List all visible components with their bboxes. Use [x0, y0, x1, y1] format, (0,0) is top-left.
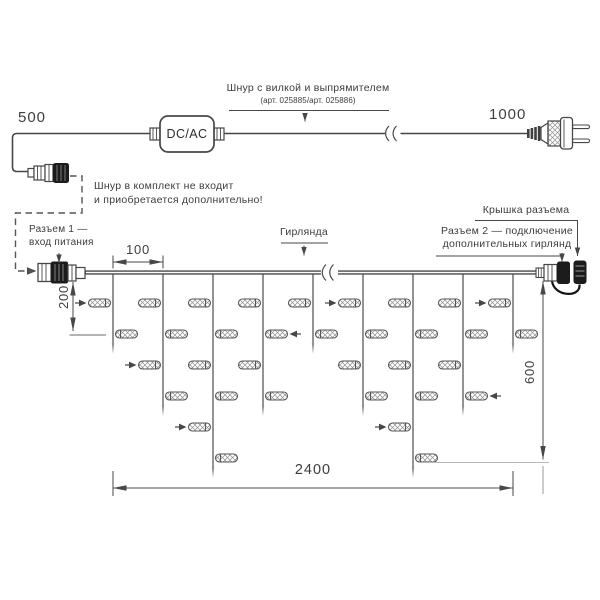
bulb	[116, 330, 138, 338]
cap-label: Крышка разъема	[474, 204, 578, 216]
cable-length-500: 500	[18, 109, 46, 126]
bulb	[189, 423, 211, 431]
connector1-label-line1: Разъем 1 —	[29, 224, 87, 236]
plug-prong	[573, 125, 590, 129]
drop-tip	[162, 405, 164, 416]
flash-marker-icon	[329, 300, 337, 307]
drop-tip	[112, 343, 114, 354]
flash-marker-icon	[379, 424, 387, 431]
connector-cap	[574, 261, 587, 285]
plug-prong	[573, 139, 590, 143]
power-plug	[527, 118, 590, 150]
cable-break-icon	[386, 126, 389, 141]
bulb	[289, 299, 311, 307]
bulb	[389, 299, 411, 307]
cable-length-1000: 1000	[489, 106, 526, 123]
diagram-page: 500 Шнур с вилкой и выпрямителем (арт. 0…	[0, 0, 600, 600]
bulb	[389, 361, 411, 369]
drop-tip	[462, 405, 464, 416]
dimension-lines	[70, 256, 550, 497]
bulb	[166, 330, 188, 338]
bulb	[416, 392, 438, 400]
dim-100-label: 100	[113, 243, 163, 258]
connector2-label-line1: Разъем 2 — подключение	[440, 225, 574, 237]
flash-marker-icon	[490, 393, 498, 400]
bulb	[516, 330, 538, 338]
bulb	[339, 299, 361, 307]
dim-2400-label: 2400	[283, 462, 343, 479]
bulb	[139, 299, 161, 307]
drop-tip	[212, 467, 214, 478]
bulb	[166, 392, 188, 400]
cord-connector	[28, 163, 69, 183]
cord-subtitle: (арт. 025885/арт. 025886)	[224, 96, 392, 105]
bulb	[366, 330, 388, 338]
bulb	[216, 454, 238, 462]
flash-marker-icon	[179, 424, 187, 431]
cord-note-line2: и приобретается дополнительно!	[94, 194, 263, 206]
drop-tip	[312, 343, 314, 354]
bulb	[189, 299, 211, 307]
drop-tip	[362, 405, 364, 416]
bulb	[489, 299, 511, 307]
bulb	[466, 330, 488, 338]
bulb	[216, 330, 238, 338]
drop-tip	[412, 467, 414, 478]
cord-title: Шнур с вилкой и выпрямителем	[224, 82, 392, 94]
bulb	[316, 330, 338, 338]
bulb	[239, 299, 261, 307]
bulb	[416, 330, 438, 338]
flash-marker-icon	[129, 362, 137, 369]
flash-marker-icon	[479, 300, 487, 307]
flash-marker-icon	[79, 300, 87, 307]
cord-left-cable	[13, 134, 151, 172]
bulb	[89, 299, 111, 307]
bulb	[216, 392, 238, 400]
dc-ac-label: DC/AC	[160, 116, 214, 152]
bulb	[466, 392, 488, 400]
dashed-path-arrowhead	[28, 268, 36, 274]
bulb	[239, 361, 261, 369]
bulb	[339, 361, 361, 369]
bulb	[389, 423, 411, 431]
dim-200-label: 200	[56, 275, 72, 319]
drop-tip	[512, 343, 514, 354]
dim-200	[70, 282, 107, 335]
bulb	[189, 361, 211, 369]
bulb	[439, 361, 461, 369]
bulb	[139, 361, 161, 369]
garland-wire	[85, 263, 537, 283]
bulb	[439, 299, 461, 307]
connector2-label-line2: дополнительных гирлянд	[440, 238, 574, 250]
drop-tip	[262, 405, 264, 416]
cord-note-line1: Шнур в комплект не входит	[94, 180, 234, 192]
bulb	[366, 392, 388, 400]
garland-label: Гирлянда	[262, 226, 346, 238]
garland-drops	[75, 271, 538, 478]
dim-600-label: 600	[522, 350, 538, 394]
flash-marker-icon	[290, 331, 298, 338]
connector-2	[536, 261, 587, 294]
bulb	[266, 330, 288, 338]
bulb	[416, 454, 438, 462]
connector1-label-line2: вход питания	[29, 237, 94, 249]
bulb	[266, 392, 288, 400]
